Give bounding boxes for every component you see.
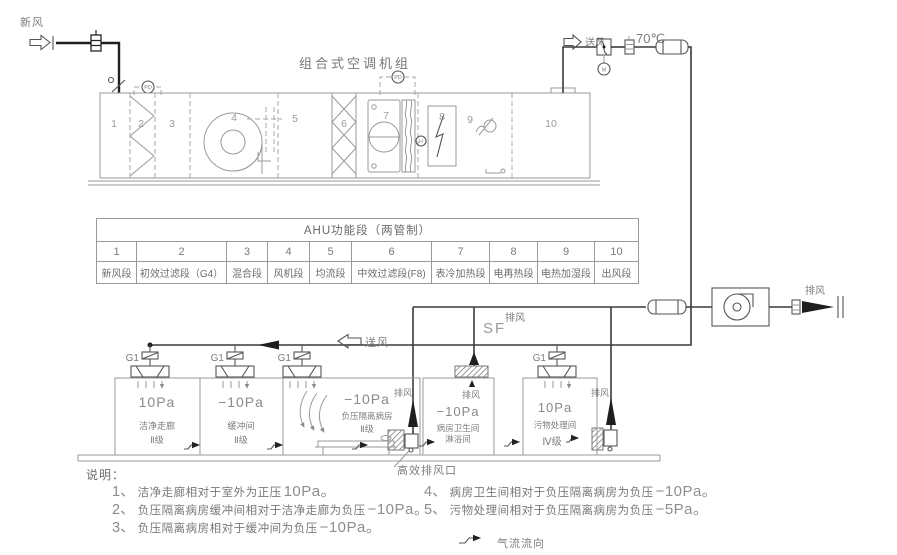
cooling-heating-coil-icon <box>368 100 415 172</box>
note-number: 2、 <box>112 502 135 518</box>
note-text: 负压隔离病房缓冲间相对于洁净走廊为负压 <box>138 505 366 517</box>
table-cell: 10 <box>595 242 639 262</box>
ahu-base <box>88 181 600 185</box>
table-cell: 电热加湿段 <box>538 262 595 284</box>
mid-filter-icon <box>332 93 356 178</box>
note-text: 洁净走廊相对于室外为正压 <box>138 487 282 499</box>
exhaust-grille-box <box>405 434 418 448</box>
room-grade: Ⅱ级 <box>360 423 373 434</box>
room-name: 污物处理间 <box>534 420 577 430</box>
table-cell: 均流段 <box>310 262 352 284</box>
exhaust-label: 排风 <box>462 389 480 400</box>
airflow-legend: 气流流向 <box>459 536 545 550</box>
airflow-direction-icon <box>184 445 199 449</box>
section-number: 4 <box>231 112 237 124</box>
humidifier-icon <box>476 118 505 173</box>
section-number: 10 <box>545 118 557 130</box>
exhaust-fan-icon <box>712 288 769 326</box>
g1-diffuser: G1 <box>533 345 576 388</box>
silencer-icon <box>648 300 686 314</box>
fresh-air-inlet: 新风 <box>20 15 125 93</box>
airflow-direction-icon <box>566 438 578 442</box>
exhaust-label: 排风 <box>394 387 412 398</box>
note-number: 3、 <box>112 520 135 536</box>
fire-damper-temp-label: 70℃ <box>636 31 665 46</box>
room-name: 病房卫生间 <box>437 423 480 433</box>
exhaust-up-arrow-icon <box>469 380 475 387</box>
room-subname: 淋浴间 <box>445 434 471 444</box>
exhaust-grille-box <box>604 430 617 446</box>
room-pressure: 10Pa <box>538 400 572 415</box>
section-number: 7 <box>383 110 389 122</box>
table-cell: 电再热段 <box>490 262 538 284</box>
table-cell: 中效过滤段(F8) <box>352 262 432 284</box>
exhaust-duct: 排风 排风 排风 高效排风口 <box>388 284 843 477</box>
note-value: −5Pa。 <box>656 501 709 518</box>
exhaust-up-arrow-icon <box>469 352 479 365</box>
room-grade: Ⅱ级 <box>234 434 247 445</box>
supply-air-down-arrows <box>545 381 569 388</box>
diagram-title: 组合式空调机组 <box>299 53 411 72</box>
floor-slab <box>78 455 660 461</box>
rooms-plan: 10Pa 洁净走廊 Ⅱ级 −10Pa 缓冲间 Ⅱ级 −10Pa 负压隔离病房 Ⅱ… <box>78 378 660 461</box>
fan-icon <box>204 107 282 174</box>
room-pressure: −10Pa <box>218 394 264 410</box>
section-number: 1 <box>111 118 117 130</box>
outlet-damper-icon <box>792 300 800 314</box>
table-cell: 8 <box>490 242 538 262</box>
exhaust-label: 排风 <box>591 387 609 398</box>
room-name: 缓冲间 <box>227 420 254 431</box>
room-pressure: −10Pa <box>437 404 480 419</box>
note-value: −10Pa。 <box>368 501 430 518</box>
section-number: 2 <box>138 118 144 130</box>
room-grade: Ⅳ级 <box>542 436 561 448</box>
room-pressure: −10Pa <box>344 391 390 407</box>
note-value: −10Pa。 <box>656 483 718 500</box>
table-cell: 7 <box>432 242 490 262</box>
room-name: 负压隔离病房 <box>341 411 392 421</box>
table-cell: 3 <box>227 242 268 262</box>
note-text: 负压隔离病房相对于缓冲间为负压 <box>138 523 318 535</box>
note-value: 10Pa。 <box>284 483 337 500</box>
supply-flow-arrow-icon <box>258 341 279 350</box>
g1-diffuser: G1 <box>126 345 169 388</box>
supply-air-down-arrows <box>290 381 314 388</box>
exhaust-up-arrow-icon <box>606 397 616 425</box>
room-name: 洁净走廊 <box>139 420 175 431</box>
supply-air-arrow-icon <box>338 335 361 349</box>
supply-riser-and-main <box>150 47 691 345</box>
airflow-direction-icon <box>504 442 519 446</box>
exhaust-arrow-icon <box>802 301 834 313</box>
table-cell: 5 <box>310 242 352 262</box>
note-item: 4、病房卫生间相对于负压隔离病房为负压−10Pa。 <box>424 483 717 501</box>
table-row-names: 新风段 初效过滤段（G4） 混合段 风机段 均流段 中效过滤段(F8) 表冷加热… <box>97 262 639 284</box>
h-sensor-label: H <box>419 139 423 145</box>
note-text: 污物处理间相对于负压隔离病房为负压 <box>450 505 654 517</box>
supply-duct: 送风 M 70℃ 送风 SF <box>148 31 692 350</box>
table-cell: 2 <box>137 242 227 262</box>
section-number: 9 <box>467 114 473 126</box>
table-cell: 表冷加热段 <box>432 262 490 284</box>
table-cell: 出风段 <box>595 262 639 284</box>
fire-damper-icon <box>91 30 101 51</box>
notes-column-right: 4、病房卫生间相对于负压隔离病房为负压−10Pa。 5、污物处理间相对于负压隔离… <box>424 483 717 519</box>
supply-air-label: 送风 <box>365 335 389 349</box>
hepa-filter-icon <box>455 366 488 377</box>
note-item: 1、洁净走廊相对于室外为正压10Pa。 <box>112 483 429 501</box>
ahu-unit: H 1 2 3 4 5 6 7 8 9 10 <box>88 88 600 185</box>
inlet-damper-icon <box>109 78 126 93</box>
pd-sensor: PD <box>380 71 415 95</box>
exhaust-branch-waste: 排风 <box>591 307 617 451</box>
fresh-air-arrow-icon <box>30 36 50 50</box>
table-cell: 6 <box>352 242 432 262</box>
g1-label: G1 <box>126 353 140 364</box>
note-number: 1、 <box>112 484 135 500</box>
bed-icon <box>315 436 397 456</box>
table-cell: 新风段 <box>97 262 137 284</box>
airflow-legend-label: 气流流向 <box>497 536 545 550</box>
section-number: 3 <box>169 118 175 130</box>
supply-air-down-arrows <box>223 381 247 388</box>
notes-column-left: 1、洁净走廊相对于室外为正压10Pa。 2、负压隔离病房缓冲间相对于洁净走廊为负… <box>112 483 429 537</box>
table-cell: 初效过滤段（G4） <box>137 262 227 284</box>
g1-diffuser: G1 <box>278 345 321 388</box>
table-cell: 风机段 <box>268 262 310 284</box>
note-value: −10Pa。 <box>320 519 382 536</box>
table-cell: 4 <box>268 242 310 262</box>
pd-sensor-label: PD <box>144 85 152 91</box>
exhaust-label: 排风 <box>805 284 825 297</box>
room-pressure: 10Pa <box>139 394 176 410</box>
table-row-numbers: 1 2 3 4 5 6 7 8 9 10 <box>97 242 639 262</box>
ahu-function-table: AHU功能段（两管制） 1 2 3 4 5 6 7 8 9 10 新风段 初效过… <box>96 218 639 284</box>
pd-sensor-label: PD <box>394 75 402 81</box>
note-item: 2、负压隔离病房缓冲间相对于洁净走廊为负压−10Pa。 <box>112 501 429 519</box>
note-number: 5、 <box>424 502 447 518</box>
g1-label: G1 <box>211 353 225 364</box>
table-cell: 1 <box>97 242 137 262</box>
exhaust-up-arrow-icon <box>408 399 418 427</box>
airflow-direction-icon <box>267 445 282 449</box>
section-number: 6 <box>341 118 347 130</box>
airflow-arcs <box>300 391 327 432</box>
room-grade: Ⅱ级 <box>150 434 163 445</box>
table-cell: 混合段 <box>227 262 268 284</box>
table-title: AHU功能段（两管制） <box>97 219 639 242</box>
pre-filter-icon <box>130 96 154 176</box>
note-number: 4、 <box>424 484 447 500</box>
fresh-air-duct <box>56 43 119 93</box>
note-text: 病房卫生间相对于负压隔离病房为负压 <box>450 487 654 499</box>
exhaust-label: 排风 <box>505 311 525 324</box>
note-item: 5、污物处理间相对于负压隔离病房为负压−5Pa。 <box>424 501 717 519</box>
airflow-direction-icon <box>419 442 434 446</box>
notes-title: 说明： <box>86 466 125 483</box>
hvac-schematic-page: 新风 PD PD <box>0 0 897 555</box>
note-item: 3、负压隔离病房相对于缓冲间为负压−10Pa。 <box>112 519 429 537</box>
motor-label: M <box>602 68 607 74</box>
table-cell: 9 <box>538 242 595 262</box>
supply-duct-top <box>563 47 597 93</box>
g1-label: G1 <box>278 353 292 364</box>
fire-damper-icon <box>625 36 634 54</box>
g1-diffuser: G1 <box>211 345 254 388</box>
fresh-air-label: 新风 <box>20 15 44 29</box>
airflow-direction-icon <box>459 538 480 543</box>
hepa-outlet-label: 高效排风口 <box>397 463 457 477</box>
section-number: 5 <box>292 113 298 125</box>
duct-end-tick <box>838 296 843 318</box>
supply-air-down-arrows <box>138 381 162 388</box>
supply-fan-label: SF <box>483 320 506 337</box>
g1-label: G1 <box>533 353 547 364</box>
section-number: 8 <box>439 111 445 123</box>
